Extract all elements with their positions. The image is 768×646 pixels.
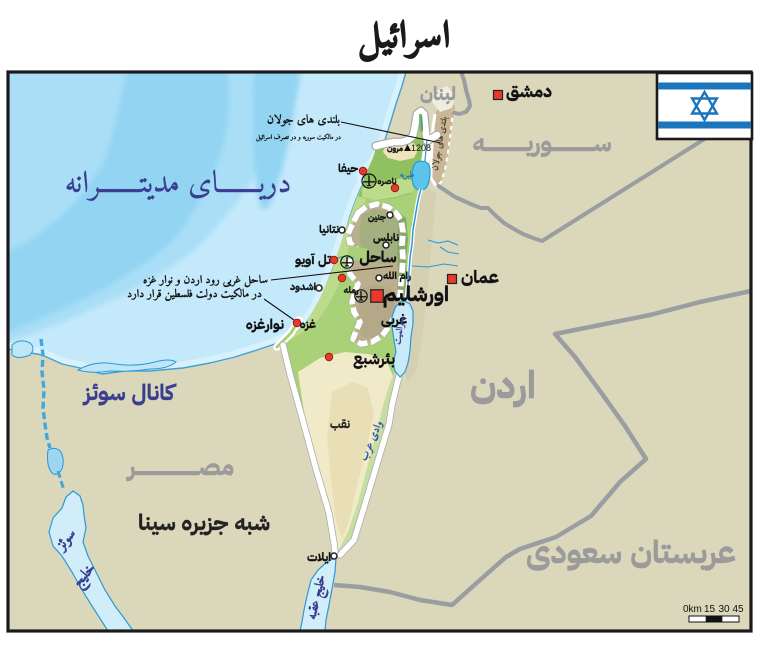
svg-text:15: 15 — [704, 604, 716, 615]
svg-text:1208: 1208 — [411, 143, 431, 153]
svg-text:0km: 0km — [683, 604, 702, 615]
svg-text:30: 30 — [719, 604, 731, 615]
svg-text:45: 45 — [733, 604, 745, 615]
